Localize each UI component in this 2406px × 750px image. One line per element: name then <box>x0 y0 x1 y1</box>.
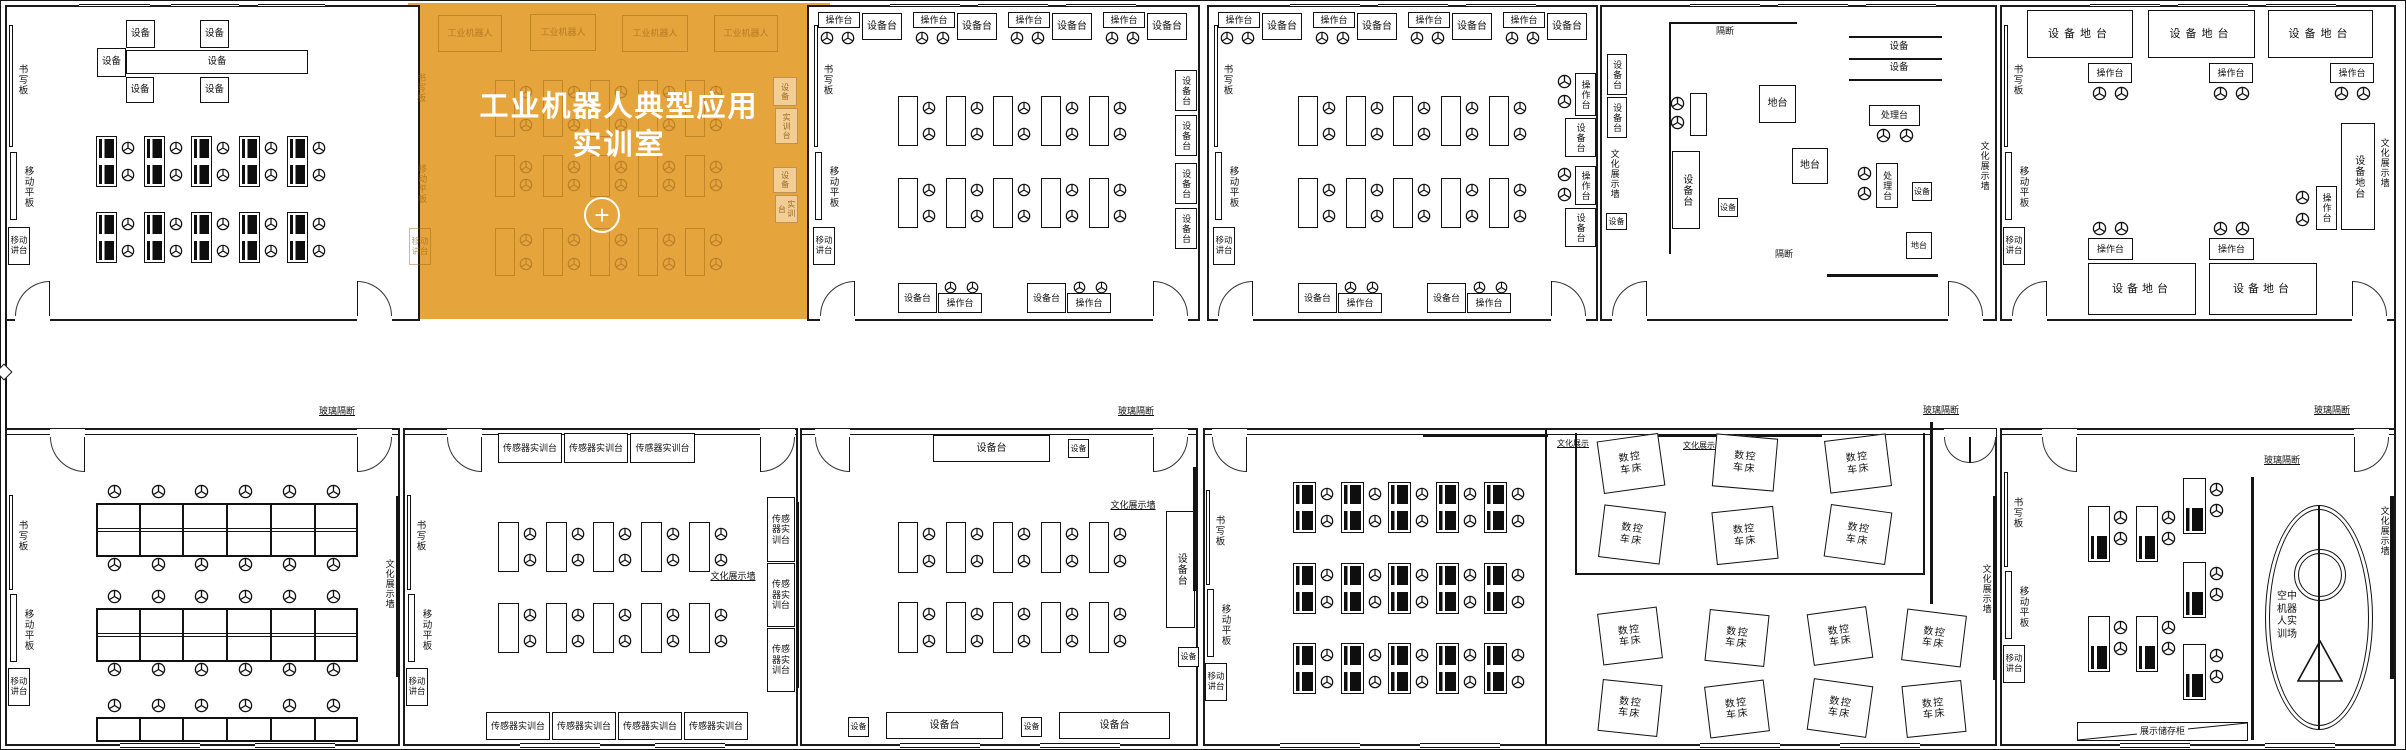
writing-board-label: 书写板 <box>2010 490 2022 536</box>
mobile-tablet-label: 移动平板 <box>2016 582 2028 632</box>
room-top-4-operation-lab[interactable] <box>1207 5 1598 321</box>
mobile-podium-box: 移动讲台 <box>409 228 431 265</box>
window <box>520 743 600 750</box>
chair-icon <box>2209 587 2224 602</box>
chair-icon <box>1670 96 1685 111</box>
desk <box>191 136 212 187</box>
desk <box>1341 563 1364 614</box>
chair-icon <box>1368 675 1382 689</box>
chair-icon <box>216 217 230 231</box>
chair-icon <box>1417 183 1431 197</box>
equipment-table-box: 设备台 <box>1672 151 1700 229</box>
door-leaf <box>849 437 850 472</box>
door-leaf <box>357 437 358 472</box>
chair-icon <box>614 178 628 192</box>
sensor-training-station-box: 传感器实训台 <box>767 628 795 692</box>
mobile-podium-box: 移动讲台 <box>1213 227 1235 265</box>
operation-console-box: 操作台 <box>1067 293 1111 313</box>
mobile-podium-box: 移动讲台 <box>406 668 428 706</box>
desk <box>287 212 308 263</box>
chair-icon <box>2161 641 2176 656</box>
table-divider <box>182 609 184 661</box>
desk <box>641 522 662 572</box>
chair-icon <box>2235 86 2250 101</box>
equipment-platform-box: 设备地台 <box>2209 263 2317 315</box>
equipment-label: 设备 <box>1886 41 1912 54</box>
door-leaf <box>1153 281 1154 316</box>
chair-icon <box>326 662 341 677</box>
wall-line <box>1575 573 1925 575</box>
desk <box>993 522 1013 573</box>
chair-icon <box>1463 514 1477 528</box>
equipment-box: 设备 <box>1718 198 1738 217</box>
chair-icon <box>709 178 723 192</box>
cnc-lathe-box: 数控车床 <box>1598 504 1666 564</box>
chair-icon <box>1465 127 1479 141</box>
chair-icon <box>1410 31 1424 45</box>
desk <box>993 178 1013 228</box>
wall-break-icon <box>0 364 12 381</box>
chair-icon <box>1511 568 1525 582</box>
chair-icon <box>1495 281 1508 294</box>
chair-icon <box>571 634 585 648</box>
window <box>120 743 200 750</box>
desk <box>1436 482 1459 533</box>
desk <box>685 228 705 276</box>
desk <box>1346 96 1366 146</box>
equipment-table-box: 设备台 <box>1547 13 1587 40</box>
sensor-training-station-box: 传感器实训台 <box>767 563 795 627</box>
chair-icon <box>264 141 278 155</box>
chair-icon <box>970 527 984 541</box>
writing-board <box>2004 472 2008 567</box>
chair-icon <box>1065 527 1079 541</box>
chair-icon <box>1465 101 1479 115</box>
door-leaf <box>1252 281 1253 316</box>
cnc-lathe-box: 数控车床 <box>1901 609 1967 668</box>
mobile-tablet-label: 移动平板 <box>1226 162 1238 212</box>
table-divider <box>139 718 141 741</box>
chair-icon <box>1220 31 1234 45</box>
mobile-tablet-label: 移动平板 <box>419 605 431 655</box>
chair-icon <box>1557 167 1572 182</box>
chair-icon <box>2209 648 2224 663</box>
desk <box>1346 178 1366 228</box>
desk <box>1393 96 1413 146</box>
desk <box>1489 178 1509 228</box>
table-divider <box>270 718 272 741</box>
desk <box>593 603 614 653</box>
chair-icon <box>523 634 537 648</box>
chair-icon <box>194 662 209 677</box>
operation-console-box: 操作台 <box>1408 12 1450 28</box>
desk <box>1089 178 1109 228</box>
chair-icon <box>2213 221 2228 236</box>
chair-icon <box>1415 514 1429 528</box>
desk <box>1484 563 1507 614</box>
cnc-lathe-box: 数控车床 <box>1824 504 1893 565</box>
chair-icon <box>1557 74 1572 89</box>
equipment-platform-box: 设备地台 <box>2088 263 2196 315</box>
door-leaf <box>854 281 855 316</box>
chair-icon <box>820 31 834 45</box>
chair-icon <box>312 217 326 231</box>
chair-icon <box>662 257 676 271</box>
chair-icon <box>666 608 680 622</box>
chair-icon <box>1073 281 1086 294</box>
chair-icon <box>1415 595 1429 609</box>
mobile-tablet <box>10 594 17 662</box>
desk <box>1388 563 1411 614</box>
chair-icon <box>216 141 230 155</box>
desk <box>638 228 658 276</box>
window <box>1280 743 1360 750</box>
floor-plan: 工业机器人典型应用 实训室 + 书写板移动平板移动讲台设备设备设备设备设备设备书… <box>0 0 2406 750</box>
chair-icon <box>1463 595 1477 609</box>
chair-icon <box>2113 620 2128 635</box>
desk <box>1089 602 1109 653</box>
writing-board <box>9 495 13 590</box>
chair-icon <box>714 634 728 648</box>
wall-line <box>1930 422 1933 604</box>
chair-icon <box>326 557 341 572</box>
chair-icon <box>1670 115 1685 130</box>
chair-icon <box>264 168 278 182</box>
table-divider <box>226 718 228 741</box>
chair-icon <box>1370 209 1384 223</box>
chair-icon <box>936 31 950 45</box>
equipment-box: 设备 <box>1606 213 1627 230</box>
chair-icon <box>1857 166 1872 181</box>
operation-console-box: 操作台 <box>2209 238 2254 260</box>
chair-icon <box>326 484 341 499</box>
window <box>978 0 1048 7</box>
chair-icon <box>922 101 936 115</box>
equipment-box: 设备 <box>1912 182 1932 201</box>
cnc-lathe-box: 数控车床 <box>1704 680 1770 739</box>
window <box>1778 0 1848 7</box>
mobile-tablet <box>408 594 415 662</box>
equipment-table-box: 设备台 <box>1175 70 1197 111</box>
desk <box>1298 96 1318 146</box>
chair-icon <box>2161 531 2176 546</box>
chair-icon <box>1415 568 1429 582</box>
desk <box>498 522 519 572</box>
chair-icon <box>1417 209 1431 223</box>
platform-box: 地台 <box>1906 232 1932 259</box>
window <box>2120 743 2190 750</box>
chair-icon <box>2209 566 2224 581</box>
processing-table-box: 处理台 <box>1869 105 1920 126</box>
desk <box>239 136 260 187</box>
table-divider <box>314 504 316 556</box>
industrial-robot-box: 工业机器人 <box>622 15 688 52</box>
desk <box>2088 506 2110 562</box>
industrial-robot-box: 工业机器人 <box>714 15 778 52</box>
chair-icon <box>1370 183 1384 197</box>
chair-icon <box>922 183 936 197</box>
desk <box>898 522 918 573</box>
desk <box>1341 643 1364 694</box>
chair-icon <box>1320 595 1334 609</box>
chair-icon <box>1336 31 1350 45</box>
equipment-table-box: 设备台 <box>1175 115 1197 156</box>
mobile-tablet <box>2005 152 2012 220</box>
chair-icon <box>2213 86 2228 101</box>
sensor-training-station-box: 传感器实训台 <box>564 433 628 463</box>
desk <box>593 522 614 572</box>
window <box>1420 743 1500 750</box>
window <box>1840 743 1920 750</box>
chair-icon <box>970 183 984 197</box>
field-center-line <box>2318 505 2319 730</box>
chair-icon <box>1113 527 1127 541</box>
cnc-lathe-box: 数控车床 <box>1712 433 1778 491</box>
chair-icon <box>618 608 632 622</box>
equipment-box: 设备 <box>126 20 155 48</box>
chair-icon <box>1065 183 1079 197</box>
chair-icon <box>519 178 533 192</box>
window <box>900 743 980 750</box>
plus-icon[interactable]: + <box>584 197 620 233</box>
mobile-tablet-label: 移动平板 <box>416 160 428 208</box>
chair-icon <box>922 527 936 541</box>
chair-icon <box>666 634 680 648</box>
chair-icon <box>922 209 936 223</box>
chair-icon <box>2334 86 2349 101</box>
chair-icon <box>194 698 209 713</box>
chair-icon <box>1857 186 1872 201</box>
chair-icon <box>1415 675 1429 689</box>
display-storage-cabinet: 展示储存柜 <box>2077 722 2248 741</box>
chair-icon <box>841 31 855 45</box>
chair-icon <box>2092 86 2107 101</box>
chair-icon <box>1113 634 1127 648</box>
chair-icon <box>1241 31 1255 45</box>
room-bottom-2-sensor-lab[interactable] <box>403 428 798 746</box>
table-divider <box>270 609 272 661</box>
operation-console-box: 操作台 <box>2330 63 2374 83</box>
chair-icon <box>2356 86 2371 101</box>
operation-console-box: 操作台 <box>938 293 982 313</box>
writing-board <box>1214 25 1218 147</box>
operation-console-box: 操作台 <box>913 12 955 28</box>
chair-icon <box>1017 527 1031 541</box>
equipment-table-box: 设备台 <box>1147 13 1187 40</box>
desk <box>993 96 1013 146</box>
chair-icon <box>1320 675 1334 689</box>
chair-icon <box>970 209 984 223</box>
desk <box>946 178 966 228</box>
culture-display-wall-label: 文化展示墙 <box>1980 558 1993 620</box>
desk <box>1489 96 1509 146</box>
operation-console-box: 操作台 <box>818 12 860 28</box>
chair-icon <box>1065 607 1079 621</box>
cnc-lathe-box: 数控车床 <box>1807 678 1874 738</box>
chair-icon <box>662 178 676 192</box>
chair-icon <box>1505 31 1519 45</box>
chair-icon <box>107 557 122 572</box>
door-leaf <box>2354 437 2355 472</box>
chair-icon <box>121 168 135 182</box>
equipment-box: 设备 <box>126 50 308 74</box>
chair-icon <box>1513 127 1527 141</box>
wall-line <box>0 0 2406 1</box>
chair-icon <box>1370 101 1384 115</box>
desk <box>2136 506 2158 562</box>
mobile-tablet-label: 移动平板 <box>21 162 33 212</box>
desk <box>144 212 165 263</box>
mobile-podium-box: 移动讲台 <box>8 668 30 706</box>
equipment-box: 设备 <box>97 48 126 77</box>
chair-icon <box>1465 209 1479 223</box>
desk <box>1436 643 1459 694</box>
window <box>1040 743 1120 750</box>
mobile-tablet <box>2005 571 2012 639</box>
chair-icon <box>1113 127 1127 141</box>
chair-icon <box>264 217 278 231</box>
equipment-table-box: 设备台 <box>1427 283 1466 313</box>
highlighted-room-title-line2: 实训室 <box>408 127 830 165</box>
chair-icon <box>523 553 537 567</box>
room-bottom-3-equipment-lab[interactable] <box>800 428 1198 746</box>
equipment-table-box: 设备台 <box>933 435 1050 462</box>
writing-board <box>1206 490 1210 585</box>
mobile-podium-box: 移动讲台 <box>2003 645 2025 683</box>
glass-partition-label: 玻璃隔断 <box>1113 406 1159 417</box>
culture-display-wall-label: 文化展示墙 <box>383 552 396 616</box>
chair-icon <box>1463 648 1477 662</box>
equipment-table-box: 设备台 <box>1175 208 1197 249</box>
window <box>171 0 239 7</box>
equipment-table-box: 设备台 <box>886 712 1003 739</box>
chair-icon <box>1031 31 1045 45</box>
mobile-tablet-label: 移动平板 <box>2016 162 2028 212</box>
industrial-robot-box: 工业机器人 <box>438 15 502 52</box>
chair-icon <box>151 698 166 713</box>
equipment-table-box: 设备台 <box>1175 163 1197 204</box>
chair-icon <box>1113 554 1127 568</box>
chair-icon <box>312 244 326 258</box>
chair-icon <box>2295 190 2310 205</box>
mobile-tablet-label: 移动平板 <box>826 162 838 212</box>
chair-icon <box>966 281 979 294</box>
desk <box>144 136 165 187</box>
table-divider <box>139 609 141 661</box>
chair-icon <box>970 607 984 621</box>
wall-line <box>1423 434 1548 437</box>
desk <box>1436 563 1459 614</box>
window <box>1290 0 1360 7</box>
equipment-table-box: 设备台 <box>1262 13 1302 40</box>
chair-icon <box>1017 554 1031 568</box>
chair-icon <box>1368 595 1382 609</box>
chair-icon <box>1322 101 1336 115</box>
desk <box>946 96 966 146</box>
room-top-3-operation-lab[interactable] <box>807 5 1200 321</box>
operation-console-box: 操作台 <box>1103 12 1145 28</box>
chair-icon <box>151 589 166 604</box>
chair-icon <box>714 553 728 567</box>
mobile-tablet <box>1215 152 1222 220</box>
sensor-training-station-box: 传感器实训台 <box>486 712 550 740</box>
chair-icon <box>618 553 632 567</box>
chair-icon <box>1113 101 1127 115</box>
door-leaf <box>2046 281 2047 316</box>
chair-icon <box>1017 634 1031 648</box>
window <box>2090 0 2160 7</box>
desk <box>1041 96 1061 146</box>
chair-icon <box>1113 607 1127 621</box>
chair-icon <box>714 527 728 541</box>
chair-icon <box>151 557 166 572</box>
desk <box>898 602 918 653</box>
sensor-training-station-box: 传感器实训台 <box>630 433 695 463</box>
chair-icon <box>666 553 680 567</box>
equipment-box: 设备 <box>126 77 154 103</box>
operation-console-box: 操作台 <box>2209 63 2253 83</box>
operation-console-box: 操作台 <box>1575 166 1596 205</box>
chair-icon <box>121 244 135 258</box>
operation-console-box: 操作台 <box>1467 293 1511 313</box>
chair-icon <box>1899 128 1914 143</box>
table-divider <box>182 504 184 556</box>
desk <box>287 136 308 187</box>
equipment-box: 设备 <box>773 167 797 193</box>
desk <box>1041 602 1061 653</box>
window <box>255 743 335 750</box>
sensor-training-station-box: 传感器实训台 <box>684 712 748 740</box>
chair-icon <box>238 662 253 677</box>
box <box>1690 93 1707 136</box>
culture-display-wall-label: 文化展示墙 <box>708 571 758 582</box>
chair-icon <box>709 257 723 271</box>
cnc-lathe-box: 数控车床 <box>1597 433 1666 494</box>
equipment-platform-box: 设备地台 <box>2341 123 2375 230</box>
chair-icon <box>519 257 533 271</box>
chair-icon <box>1322 183 1336 197</box>
window <box>890 0 960 7</box>
sensor-training-station-box: 传感器实训台 <box>767 497 795 562</box>
chair-icon <box>571 527 585 541</box>
desk <box>1293 482 1316 533</box>
chair-icon <box>282 484 297 499</box>
chair-icon <box>666 527 680 541</box>
mobile-tablet-label: 移动平板 <box>1218 600 1230 650</box>
equipment-box: 设备 <box>1068 439 1089 458</box>
chair-icon <box>107 484 122 499</box>
writing-board-label: 书写板 <box>413 513 425 559</box>
desk <box>2183 562 2206 618</box>
chair-icon <box>1113 183 1127 197</box>
chair-icon <box>970 554 984 568</box>
window <box>258 0 325 7</box>
chair-icon <box>922 634 936 648</box>
operation-console-box: 操作台 <box>2088 63 2132 83</box>
window <box>1700 743 1780 750</box>
chair-icon <box>571 553 585 567</box>
wall-line <box>1849 58 1942 60</box>
desk <box>191 212 212 263</box>
glass-partition-label: 玻璃隔断 <box>2309 405 2355 416</box>
chair-icon <box>1065 209 1079 223</box>
chair-icon <box>922 607 936 621</box>
table-divider <box>226 609 228 661</box>
chair-icon <box>1065 101 1079 115</box>
equipment-platform-box: 设备地台 <box>2268 10 2373 58</box>
sensor-training-station-box: 传感器实训台 <box>618 712 682 740</box>
window <box>79 0 150 7</box>
